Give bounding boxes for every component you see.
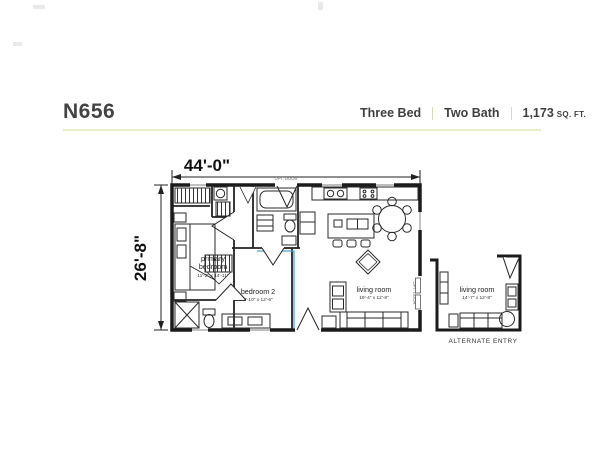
alt-living-room-dims: 14'-7" x 12'-8" <box>462 295 492 301</box>
sink <box>248 317 262 325</box>
stool <box>361 240 370 247</box>
dining-chair <box>388 232 397 241</box>
primary-bedroom-furniture <box>174 187 230 301</box>
sink <box>228 317 242 325</box>
kitchen-fixtures <box>300 187 418 247</box>
range <box>360 188 377 199</box>
stool <box>333 240 342 247</box>
closet-hatch <box>175 188 210 203</box>
interior-walls <box>172 185 300 330</box>
pillow <box>177 228 186 241</box>
sofa <box>460 313 502 328</box>
double-vanity <box>222 314 270 328</box>
kitchen-island <box>328 214 374 238</box>
depth-dimension: 26'-8" <box>131 185 168 330</box>
linen-closet <box>257 215 273 231</box>
alternate-entry-door <box>503 257 519 278</box>
opt-door-note: OPT. DOOR <box>274 176 297 181</box>
sofa <box>340 312 408 328</box>
primary-bath-fixtures <box>175 302 270 328</box>
bedroom2-label: bedroom 2 <box>241 287 275 296</box>
refrigerator <box>300 212 315 234</box>
sink <box>282 236 296 245</box>
bedroom2-closet-hatch <box>205 255 232 272</box>
end-table <box>322 316 336 328</box>
dining-chair <box>403 206 412 215</box>
bedroom2-dims: 7'-10" x 12'-6" <box>243 297 273 303</box>
nightstand <box>174 213 186 222</box>
living-room-label: living room <box>357 285 392 294</box>
ceiling-fan-icon <box>216 189 224 197</box>
stool <box>347 240 356 247</box>
end-table <box>449 314 458 327</box>
dining-chair <box>373 206 382 215</box>
toilet-tank <box>284 214 296 220</box>
alternate-entry-plan: living room 14'-7" x 12'-8" ALTERNATE EN… <box>430 256 522 345</box>
toilet-bowl <box>204 315 214 328</box>
dining-table <box>379 206 406 233</box>
dining-chair <box>403 224 412 233</box>
toilet-bowl <box>285 220 295 232</box>
closet-hatch <box>216 202 230 216</box>
primary-bedroom-dims: 11'-2" x 14'-11" <box>197 273 229 279</box>
plan-width-label: 44'-0" <box>184 156 230 175</box>
opt-door-side-note: OPT. DOOR <box>412 281 417 304</box>
floor-plan-canvas: 44'-0" 26'-8" <box>0 0 600 463</box>
bookcase <box>440 272 448 304</box>
dining-chair <box>388 197 397 206</box>
alt-living-room-label: living room <box>460 285 495 294</box>
living-room-dims: 19'-4" x 12'-8" <box>359 295 389 301</box>
pillow <box>177 245 186 258</box>
alternate-entry-caption: ALTERNATE ENTRY <box>448 338 517 345</box>
plan-depth-label: 26'-8" <box>131 235 150 281</box>
counter <box>312 187 418 200</box>
